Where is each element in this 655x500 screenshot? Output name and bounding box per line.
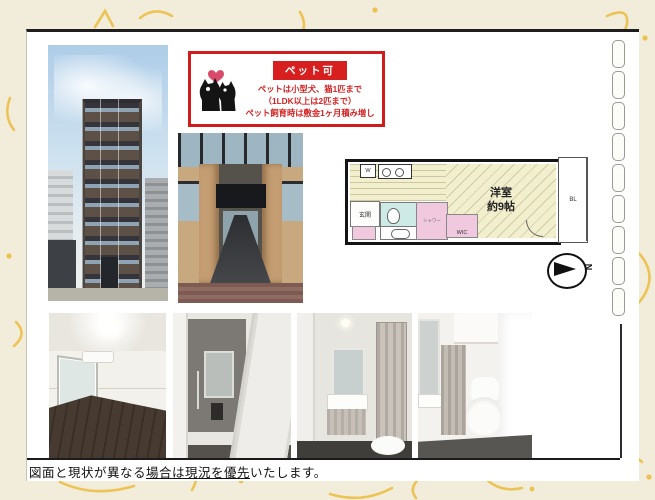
flyer-page: ペット可 ペットは小型犬、猫1匹まで （1LDK以上は2匹まで） ペット飼育時は… [26, 29, 639, 481]
toilet-fixture [387, 208, 400, 224]
compass-arrow [554, 262, 576, 276]
pets-allowed-badge: ペット可 [273, 61, 347, 80]
vanity-mirror [332, 348, 366, 398]
compass-north-label: N [583, 264, 593, 271]
street [48, 288, 168, 301]
under-sink-cabinet [327, 409, 366, 435]
entrance-photo [178, 133, 303, 303]
front-pavement [178, 283, 303, 303]
room-name-label: 洋室 [490, 187, 512, 201]
binding-ring [612, 288, 625, 316]
neighbor-building-right [145, 178, 168, 301]
footer-disclaimer-suffix: いたします。 [250, 466, 327, 480]
right-balcony-glass [278, 181, 303, 221]
binding-ring [612, 195, 625, 223]
tall-cabinet [376, 322, 408, 443]
room-size-label: 約9帖 [487, 201, 515, 215]
pet-rule-line-2: （1LDK以上は2匹まで） [238, 95, 382, 107]
closet-area [352, 226, 376, 240]
upper-balcony-glass [178, 133, 303, 167]
footer-divider [27, 458, 620, 460]
downlight [341, 319, 350, 328]
entrance-pillar-right [262, 164, 282, 283]
pet-notice-box: ペット可 ペットは小型犬、猫1匹まで （1LDK以上は2匹まで） ペット飼育時は… [188, 51, 385, 127]
bathroom-photo [173, 313, 291, 458]
shower-bar [197, 371, 199, 409]
kitchen-stove [378, 164, 412, 179]
door-frame [173, 313, 188, 458]
entrance-canopy [216, 184, 266, 208]
balcony-rail [583, 157, 587, 241]
bathroom-mirror [204, 351, 234, 399]
binding-ring [612, 71, 625, 99]
binding-ring [612, 164, 625, 192]
bathtub-fixture [391, 229, 410, 239]
binding-ring [612, 40, 625, 68]
stove-burner [395, 168, 404, 177]
tower-entrance [101, 257, 118, 288]
washer-spot: W [360, 164, 376, 178]
toilet-edge [371, 436, 406, 455]
page-right-edge [620, 324, 622, 458]
floor-plan: 洋室 約9帖 W 玄関 シャワー WIC BL [333, 145, 595, 257]
entrance-area: 玄関 [350, 201, 380, 227]
pet-rule-line-1: ペットは小型犬、猫1匹まで [238, 83, 382, 95]
walk-in-closet: WIC [446, 214, 478, 238]
binding-ring [612, 133, 625, 161]
wood-cabinet [441, 345, 466, 435]
storefront [48, 240, 76, 291]
toilet-photo [418, 313, 532, 458]
footer-disclaimer-prefix: 図面と現状が異なる [29, 466, 146, 480]
stove-burner [382, 168, 391, 177]
pet-rule-line-3: ペット飼育時は敷金1ヶ月積み増し [238, 107, 382, 119]
toilet-room [380, 202, 418, 228]
cats-icon [194, 63, 238, 115]
bath-stool [211, 403, 223, 420]
toilet-floor [418, 435, 532, 458]
living-room-photo [49, 313, 166, 458]
ceiling-light [100, 322, 119, 335]
binding-ring [612, 102, 625, 130]
toilet-seat [466, 397, 502, 435]
footer-disclaimer: 図面と現状が異なる場合は現況を優先いたします。 [29, 462, 327, 481]
shower-area: シャワー [416, 202, 448, 240]
north-compass-icon: N [547, 251, 593, 291]
building-exterior-photo [48, 45, 168, 301]
pet-notice-texts: ペット可 ペットは小型犬、猫1匹まで （1LDK以上は2匹まで） ペット飼育時は… [238, 59, 382, 119]
vanity-photo [297, 313, 412, 458]
side-mirror [418, 319, 440, 398]
air-conditioner [82, 351, 114, 363]
entrance-pillar-left [199, 164, 219, 283]
binding-ring [612, 226, 625, 254]
binding-ring [612, 257, 625, 285]
floor-plan-unit: 洋室 約9帖 W 玄関 シャワー WIC [345, 159, 561, 245]
door-frame [297, 313, 315, 458]
bath-room [380, 226, 418, 240]
footer-disclaimer-underlined: 場合は現況を優先 [146, 466, 250, 480]
